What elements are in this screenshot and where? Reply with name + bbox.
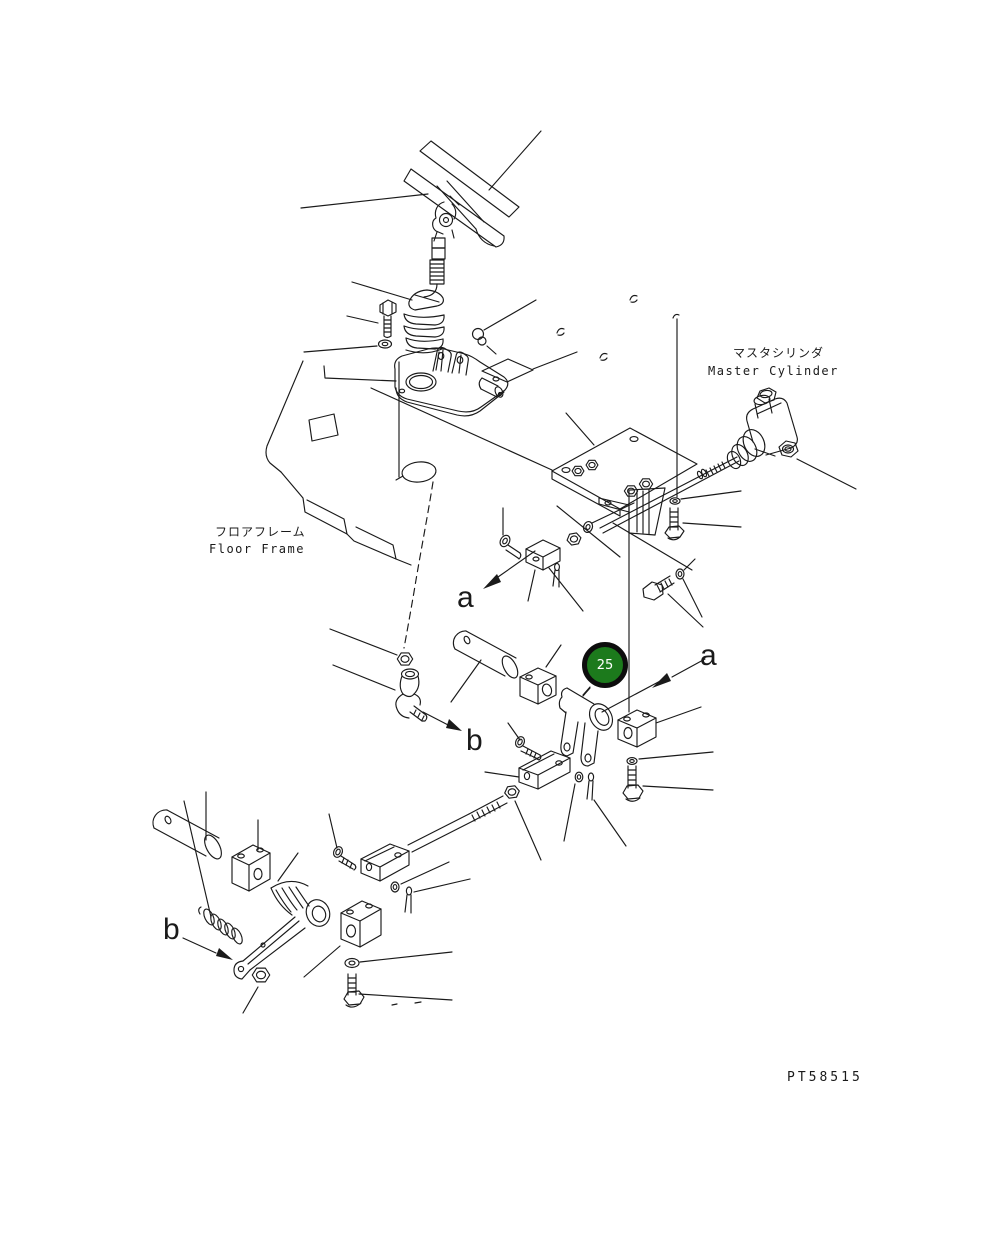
pivot-pin bbox=[153, 792, 225, 862]
block-washer bbox=[627, 752, 713, 764]
view-arrow-b2 bbox=[183, 938, 233, 960]
view-arrow-b1 bbox=[423, 712, 462, 731]
washer-a bbox=[582, 503, 634, 534]
link-block-2 bbox=[618, 707, 701, 747]
stopper-bolt bbox=[329, 814, 356, 870]
link-pin bbox=[451, 631, 521, 702]
lower-bolt-washer bbox=[643, 559, 703, 627]
lever-nut bbox=[243, 968, 270, 1013]
floor-frame-label-en: Floor Frame bbox=[209, 542, 305, 556]
lever-washer bbox=[345, 952, 452, 968]
floor-frame-outline bbox=[266, 361, 552, 565]
clevis-yoke-item25 bbox=[559, 687, 617, 766]
rod-nut bbox=[504, 785, 541, 860]
section-label-b1: b bbox=[466, 726, 483, 756]
diagram-canvas bbox=[0, 0, 1008, 1237]
link-block-1 bbox=[520, 645, 561, 704]
lever-block bbox=[304, 901, 381, 977]
section-label-b2: b bbox=[163, 915, 180, 945]
view-arrow-a1 bbox=[483, 551, 535, 589]
lever-bolt bbox=[344, 974, 452, 1007]
pedal-clevis-rod bbox=[424, 196, 459, 297]
bracket-washer bbox=[670, 491, 741, 504]
return-spring bbox=[184, 801, 244, 945]
yoke-cotter-pin bbox=[587, 773, 626, 846]
section-label-a1: a bbox=[457, 583, 474, 613]
brake-pedal bbox=[301, 131, 541, 247]
floor-frame-label-jp: フロアフレーム bbox=[215, 523, 306, 540]
cotter-pin-a bbox=[553, 563, 559, 587]
callout-number: 25 bbox=[597, 658, 614, 673]
sleeve-cotter-pin bbox=[405, 879, 470, 913]
mount-bolt bbox=[347, 300, 396, 338]
master-cylinder-label-en: Master Cylinder bbox=[708, 364, 839, 378]
elbow-nut bbox=[330, 629, 413, 665]
block-bolt bbox=[623, 766, 713, 801]
rod-sleeve-upper bbox=[485, 751, 570, 789]
bracket-bolt bbox=[665, 508, 741, 540]
part-code: PT58515 bbox=[787, 1070, 863, 1085]
threaded-rod bbox=[408, 796, 507, 852]
section-label-a2: a bbox=[700, 641, 717, 671]
pedal-base-plate bbox=[395, 348, 508, 416]
callout-circle-25: 25 bbox=[582, 642, 628, 688]
master-cylinder-nut bbox=[779, 441, 856, 489]
shim-plate bbox=[482, 352, 577, 382]
sleeve-washer bbox=[391, 862, 449, 892]
clevis-pin-a bbox=[498, 508, 521, 559]
callout-leader bbox=[583, 688, 590, 696]
rod-sleeve-lower bbox=[361, 844, 409, 881]
break-marks bbox=[557, 296, 679, 361]
yoke-washer bbox=[564, 772, 583, 841]
pedal-boot-spring bbox=[352, 282, 444, 353]
pivot-block bbox=[232, 820, 270, 891]
master-cylinder-label-jp: マスタシリンダ bbox=[733, 344, 824, 361]
plate-pin bbox=[479, 378, 504, 398]
bracket-nuts bbox=[572, 460, 653, 496]
rod-pin bbox=[508, 723, 541, 760]
elbow-fitting bbox=[333, 665, 427, 721]
snap-ring-clip bbox=[473, 300, 537, 354]
parts-diagram-page: マスタシリンダ Master Cylinder フロアフレーム Floor Fr… bbox=[0, 0, 1008, 1237]
master-cylinder bbox=[600, 388, 797, 533]
mount-washer bbox=[304, 340, 392, 352]
nut-a bbox=[566, 532, 582, 545]
